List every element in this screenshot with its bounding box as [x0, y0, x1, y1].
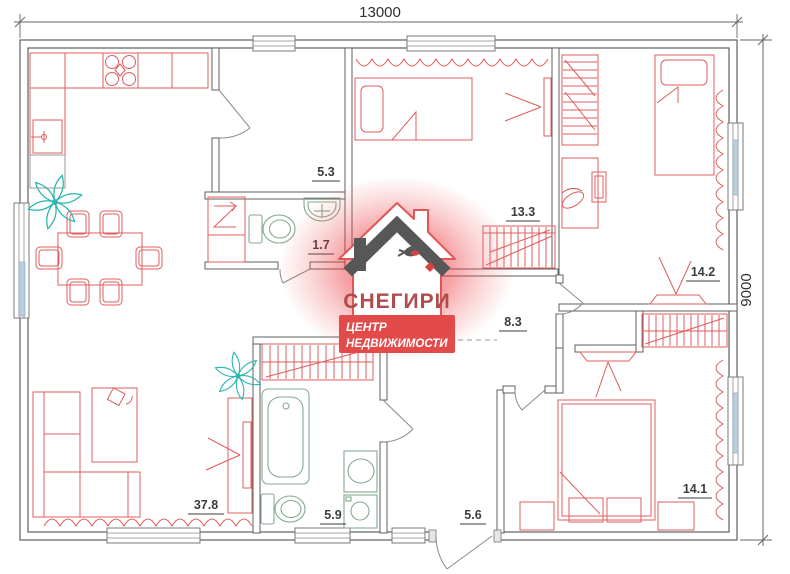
logo-chimney-bar	[354, 238, 366, 271]
logo-brand-text: СНЕГИРИ	[343, 290, 450, 313]
dining-chairs	[36, 211, 162, 305]
window-top-2	[407, 36, 495, 51]
radiator-bedroom-right-bottom	[716, 360, 723, 520]
window-right-top	[728, 123, 743, 210]
room-area-label-hall: 5.3	[317, 165, 334, 179]
tv-bedroom-top	[505, 78, 551, 136]
room-area-label-corridor: 8.3	[504, 315, 521, 329]
desk	[562, 158, 606, 228]
washing-machine-icon	[344, 495, 377, 528]
bed-single-right	[655, 55, 714, 175]
desk-chair	[560, 188, 587, 211]
plant-icon-kitchen	[23, 169, 87, 236]
window-bottom-1	[107, 528, 200, 543]
kitchen-counter	[30, 53, 208, 155]
stove-icon	[106, 56, 136, 86]
room-area-label-bedroom-right-top: 14.2	[691, 265, 715, 279]
plants-layer	[23, 169, 265, 404]
wardrobe-bedroom-right-bottom	[642, 314, 727, 347]
bathtub-icon	[262, 389, 309, 484]
bed-single-top	[355, 78, 472, 140]
bed-double	[558, 400, 655, 522]
watermark-logo: СНЕГИРИ ЦЕНТР НЕДВИЖИМОСТИ	[279, 176, 515, 360]
nightstand-left	[520, 502, 554, 530]
room-area-label-bedroom-top: 13.3	[511, 205, 535, 219]
dining-table	[58, 233, 142, 285]
dimension-width-label: 13000	[359, 4, 401, 21]
coffee-table	[92, 388, 137, 462]
room-area-label-bathroom: 5.9	[324, 508, 341, 522]
door-bathroom	[383, 400, 413, 442]
toilet-icon-bathroom	[261, 494, 305, 524]
door-bedroom-bottom-right	[515, 390, 545, 410]
floor-plan: 13000 9000	[0, 0, 790, 574]
room-area-label-entrance-hall: 5.6	[464, 508, 481, 522]
radiator-bedroom-top	[356, 59, 548, 66]
tv-bedroom-right-bottom	[580, 352, 636, 397]
wardrobe-bedroom-right-top	[562, 55, 598, 145]
wc-shelf	[208, 197, 245, 262]
bathroom-sink-icon	[344, 451, 377, 492]
radiator-bedroom-right-top	[716, 90, 723, 250]
floor-plan-canvas: 13000 9000	[0, 0, 790, 574]
room-area-label-bedroom-right-bottom: 14.1	[683, 482, 707, 496]
window-bottom-3	[392, 528, 425, 543]
window-bottom-2	[295, 528, 350, 543]
window-left	[14, 203, 29, 318]
sofa	[33, 392, 140, 517]
nightstand-right	[658, 502, 694, 530]
logo-tagline-line2: НЕДВИЖИМОСТИ	[346, 338, 448, 350]
kitchen-sink-icon	[31, 120, 62, 153]
window-top-1	[253, 36, 295, 51]
dimension-height-label: 9000	[738, 273, 755, 306]
logo-tagline-line1: ЦЕНТР	[346, 320, 388, 334]
radiator-living	[44, 519, 252, 526]
room-area-label-living: 37.8	[194, 498, 218, 512]
tv-stand-living	[206, 398, 252, 513]
window-right-bottom	[728, 377, 743, 465]
door-hall	[219, 90, 250, 138]
